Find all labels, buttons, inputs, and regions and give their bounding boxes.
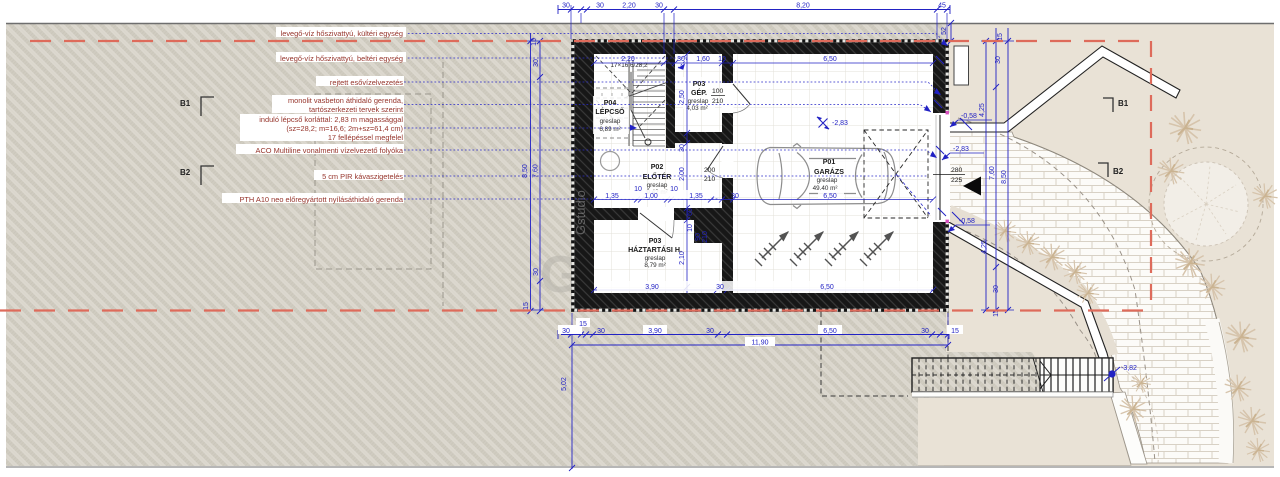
svg-text:Gstudio: Gstudio [573,190,588,235]
svg-text:4,25: 4,25 [981,240,988,254]
svg-text:8,50: 8,50 [1001,170,1008,184]
svg-text:-2,83: -2,83 [832,120,848,127]
svg-text:greslap: greslap [600,118,621,125]
svg-text:8,79 m²: 8,79 m² [644,262,665,269]
svg-text:greslap: greslap [817,177,838,184]
svg-text:P04: P04 [604,99,617,107]
svg-text:1,00: 1,00 [644,193,658,200]
svg-text:30: 30 [655,3,663,10]
svg-text:210: 210 [712,98,724,105]
svg-text:levegő-víz hőszivattyú, beltér: levegő-víz hőszivattyú, beltéri egység [280,54,403,63]
svg-text:210: 210 [704,176,716,183]
svg-text:30: 30 [706,328,714,335]
svg-text:30: 30 [716,284,724,291]
svg-text:10: 10 [634,186,642,193]
svg-text:(sz=28,2; m=16,6; 2m+sz=61,4 c: (sz=28,2; m=16,6; 2m+sz=61,4 cm) [286,124,403,133]
svg-text:8,20: 8,20 [796,3,810,10]
svg-text:10: 10 [718,56,726,63]
svg-text:GARÁZS: GARÁZS [814,167,844,176]
svg-text:4,03 m²: 4,03 m² [686,105,707,112]
svg-text:7,60: 7,60 [533,164,540,178]
svg-text:B2: B2 [1113,167,1124,176]
svg-text:3,90: 3,90 [648,328,662,335]
svg-text:1,60: 1,60 [696,56,710,63]
svg-text:-0,58: -0,58 [961,113,977,120]
svg-text:6,50: 6,50 [823,193,837,200]
svg-text:P03: P03 [693,80,706,88]
svg-text:210: 210 [702,231,709,243]
svg-text:6,89 m²: 6,89 m² [599,126,620,133]
svg-text:15: 15 [997,33,1004,41]
svg-text:1,35: 1,35 [605,193,619,200]
svg-text:greslap: greslap [647,182,668,189]
svg-text:4,25: 4,25 [979,103,986,117]
svg-text:P03: P03 [649,237,662,245]
svg-text:30: 30 [596,3,604,10]
svg-text:B1: B1 [180,99,191,108]
svg-text:GÉP.: GÉP. [691,88,707,97]
svg-text:17 fellépéssel megfelel: 17 fellépéssel megfelel [328,133,404,142]
svg-text:LÉPCSŐ: LÉPCSŐ [595,107,625,116]
svg-text:greslap: greslap [645,255,666,262]
svg-text:30: 30 [597,328,605,335]
svg-text:11,90: 11,90 [752,340,769,347]
svg-text:52: 52 [941,27,948,35]
svg-text:30: 30 [533,268,540,276]
svg-text:-3,82: -3,82 [1121,365,1137,372]
svg-text:30: 30 [533,59,540,67]
svg-text:B2: B2 [180,168,191,177]
svg-text:2,20: 2,20 [621,56,635,63]
svg-text:6,50: 6,50 [823,56,837,63]
svg-text:100: 100 [712,88,724,95]
svg-text:30: 30 [562,328,570,335]
svg-text:levegő-víz hőszivattyú, kültér: levegő-víz hőszivattyú, kültéri egység [281,29,403,38]
svg-text:ACO Multiline vonalmenti vízel: ACO Multiline vonalmenti vízelvezető fol… [256,146,404,155]
svg-text:90: 90 [695,233,702,241]
svg-text:2,10: 2,10 [679,251,686,265]
svg-text:-2,83: -2,83 [953,146,969,153]
svg-text:225: 225 [951,177,963,184]
svg-text:30: 30 [993,285,1000,293]
svg-text:30: 30 [995,56,1002,64]
svg-text:HÁZTARTÁSI H.: HÁZTARTÁSI H. [628,245,682,254]
svg-text:15: 15 [531,38,538,46]
svg-text:8,50: 8,50 [522,164,529,178]
svg-text:P01: P01 [823,158,836,166]
svg-text:tartószerkezeti tervek szerint: tartószerkezeti tervek szerint [309,105,403,114]
svg-text:5 cm PIR kávaszigetelés: 5 cm PIR kávaszigetelés [322,172,403,181]
svg-text:10: 10 [687,224,694,232]
svg-text:greslap: greslap [688,98,709,105]
svg-text:2,50: 2,50 [679,90,686,104]
svg-text:60: 60 [687,208,694,216]
svg-text:ELŐTÉR: ELŐTÉR [643,172,672,181]
svg-text:30: 30 [677,56,685,63]
svg-text:15: 15 [579,321,587,328]
svg-text:45: 45 [938,3,946,10]
svg-text:3,90: 3,90 [645,284,659,291]
svg-text:30: 30 [731,193,739,200]
svg-text:B1: B1 [1118,99,1129,108]
svg-text:30: 30 [679,144,686,152]
svg-text:induló lépcső korláttal: 2,83: induló lépcső korláttal: 2,83 m magasság… [259,115,403,124]
svg-text:6,50: 6,50 [823,328,837,335]
svg-text:2,00: 2,00 [679,167,686,181]
svg-text:7,60: 7,60 [989,166,996,180]
svg-text:15: 15 [523,302,530,310]
svg-text:PTH A10 neo előregyártott nyíl: PTH A10 neo előregyártott nyílásáthidaló… [239,195,403,204]
svg-text:15: 15 [951,328,959,335]
svg-text:6,50: 6,50 [820,284,834,291]
svg-text:30: 30 [562,3,570,10]
svg-text:1,35: 1,35 [689,193,703,200]
svg-text:200: 200 [704,167,716,174]
svg-text:rejtett esővízelvezetés: rejtett esővízelvezetés [330,78,403,87]
svg-text:10: 10 [670,186,678,193]
svg-text:30: 30 [921,328,929,335]
svg-text:5,02: 5,02 [561,377,568,391]
svg-text:2,20: 2,20 [622,3,636,10]
svg-text:monolit vasbeton áthidaló gere: monolit vasbeton áthidaló gerenda, [288,96,403,105]
svg-text:P02: P02 [651,163,664,171]
svg-text:280: 280 [951,167,963,174]
